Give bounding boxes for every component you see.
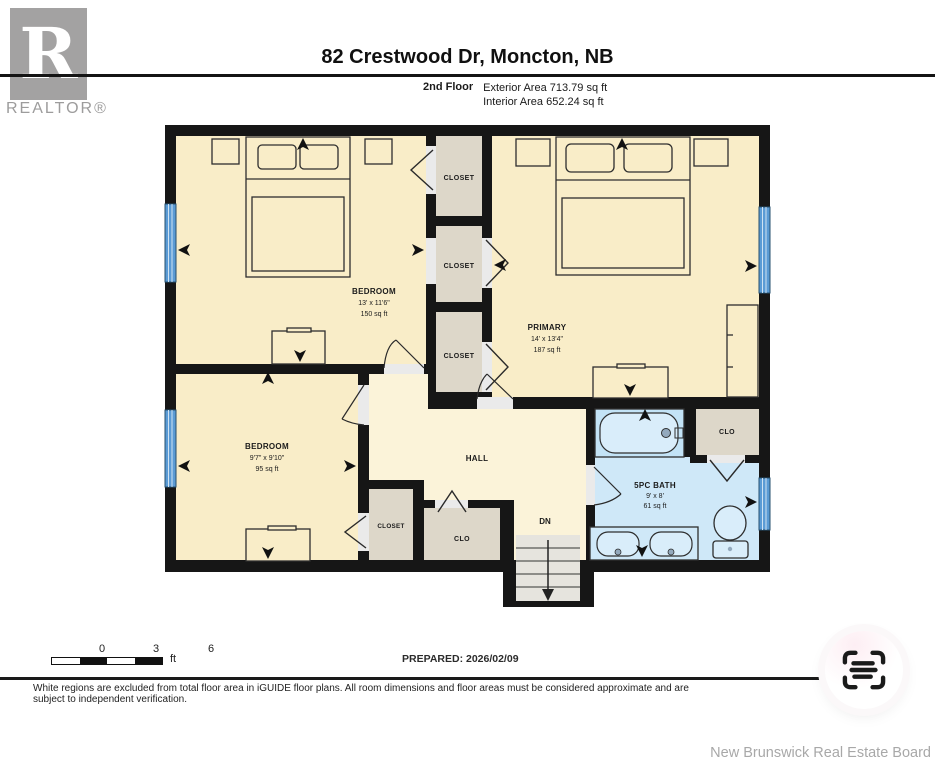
closet-label: CLOSET <box>444 353 475 360</box>
bedroom-1-dims: 13' x 11'6" <box>358 300 390 307</box>
floor-summary: 2nd Floor Exterior Area 713.79 sq ft Int… <box>423 81 607 109</box>
iguide-badge <box>825 631 903 709</box>
closet-3-floor <box>436 312 482 392</box>
nightstand-icon <box>365 139 392 164</box>
header-divider <box>0 74 935 77</box>
realtor-logo-icon: R <box>10 8 87 100</box>
dresser-icon <box>246 526 310 561</box>
scale-bar-segments <box>51 657 163 665</box>
stairs-icon <box>516 535 580 601</box>
exterior-area: Exterior Area 713.79 sq ft <box>483 81 607 95</box>
closet-label: CLOSET <box>444 263 475 270</box>
bedroom-2-label: BEDROOM <box>245 442 289 451</box>
nightstand-icon <box>694 139 728 166</box>
bedroom-1-area: 150 sq ft <box>361 311 388 318</box>
window-icon <box>165 204 176 282</box>
clo-hall-label: CLO <box>454 536 470 543</box>
scale-bar: 0 3 6 ft <box>50 643 190 669</box>
vanity-sinks-icon <box>590 527 698 560</box>
footer-divider <box>0 677 822 680</box>
disclaimer-text: White regions are excluded from total fl… <box>33 683 723 705</box>
window-icon <box>759 207 770 293</box>
bedroom-2-dims: 9'7" x 9'10" <box>250 455 285 462</box>
interior-area: Interior Area 652.24 sq ft <box>483 95 607 109</box>
window-icon <box>165 410 176 487</box>
board-credit: New Brunswick Real Estate Board <box>710 745 931 761</box>
prepared-date: PREPARED: 2026/02/09 <box>402 653 519 665</box>
clo-hall-floor <box>424 508 500 560</box>
hall-label: HALL <box>466 454 489 463</box>
bed-icon <box>246 137 350 277</box>
primary-area: 187 sq ft <box>534 347 561 354</box>
floorplan-page: { "header": { "logo": { "letter": "R", "… <box>0 0 935 768</box>
toilet-icon <box>713 506 748 558</box>
window-icon <box>759 478 770 530</box>
primary-label: PRIMARY <box>528 323 567 332</box>
bath-label: 5PC BATH <box>634 481 676 490</box>
wardrobe-icon <box>727 305 758 397</box>
scale-tick: 3 <box>153 643 159 655</box>
closet-label: CLOSET <box>444 175 475 182</box>
page-title: 82 Crestwood Dr, Moncton, NB <box>0 46 935 69</box>
realtor-logo-label: REALTOR® <box>6 100 116 118</box>
bedroom-2-area: 95 sq ft <box>256 466 279 473</box>
nightstand-icon <box>516 139 550 166</box>
bedroom-1-label: BEDROOM <box>352 287 396 296</box>
scale-tick: 0 <box>99 643 105 655</box>
bath-area: 61 sq ft <box>644 503 667 510</box>
clo-bath-label: CLO <box>719 429 735 436</box>
bath-dims: 9' x 8' <box>646 493 664 500</box>
scale-unit: ft <box>170 653 176 665</box>
scan-icon <box>841 649 887 691</box>
bathtub-icon <box>595 409 684 457</box>
primary-dims: 14' x 13'4" <box>531 336 564 343</box>
scale-tick: 6 <box>208 643 214 655</box>
bed-icon <box>556 137 690 275</box>
realtor-logo-letter: R <box>19 19 77 89</box>
closet-label: CLOSET <box>377 523 404 530</box>
floor-label: 2nd Floor <box>423 81 473 109</box>
stairs-dn-label: DN <box>539 517 551 526</box>
bedroom-2-furniture <box>246 526 310 561</box>
nightstand-icon <box>212 139 239 164</box>
